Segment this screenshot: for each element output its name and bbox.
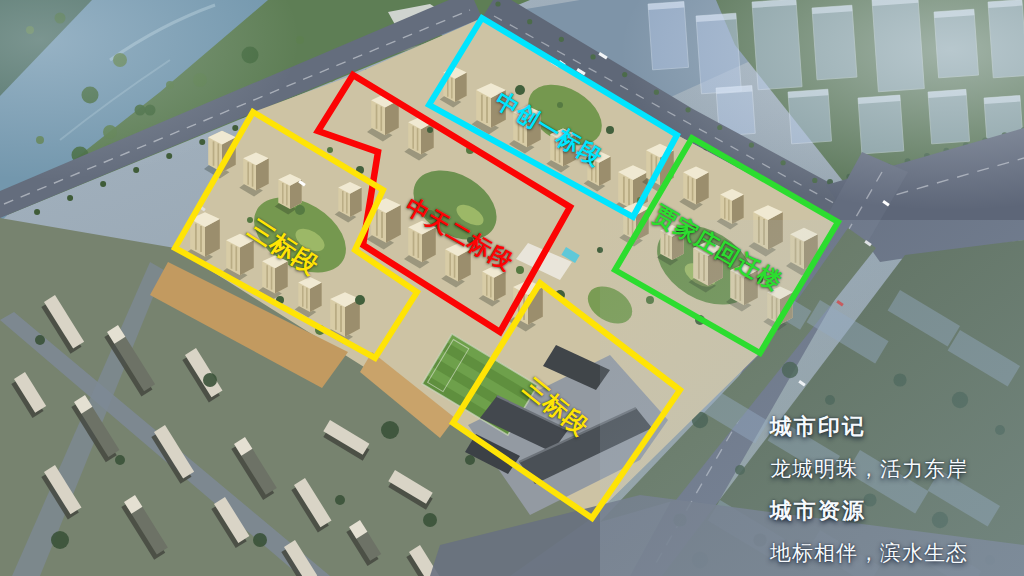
caption-line-1: 龙城明珠，活力东岸: [770, 455, 968, 483]
caption-heading-2: 城市资源: [770, 496, 968, 526]
aerial-masterplan-slide: 中创一标段 中天二标段 三标段 贾家庄回迁楼 三标段 城市印记 龙城明珠，活力东…: [0, 0, 1024, 576]
caption-block: 城市印记 龙城明珠，活力东岸 城市资源 地标相伴，滨水生态: [770, 412, 968, 567]
caption-heading-1: 城市印记: [770, 412, 968, 442]
caption-line-2: 地标相伴，滨水生态: [770, 539, 968, 567]
